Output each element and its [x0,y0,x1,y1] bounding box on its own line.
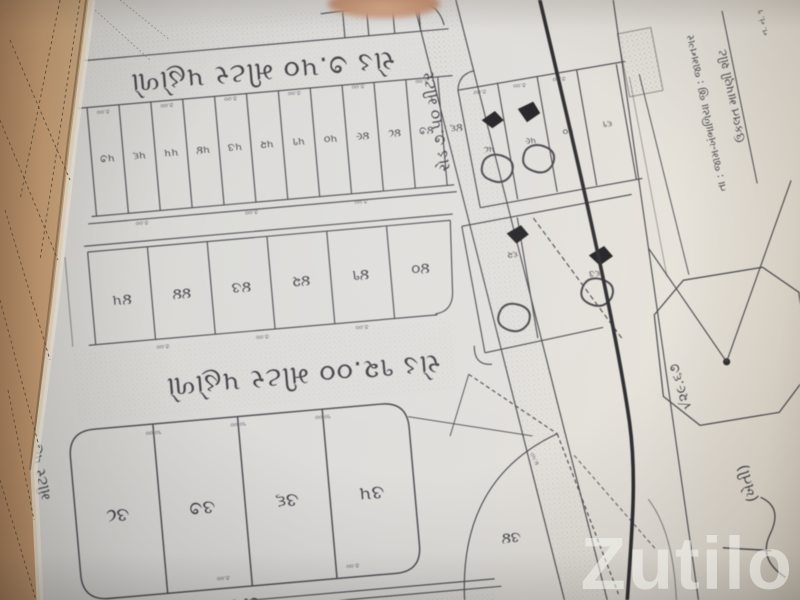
map-photo: રોડ ૭.૫૦ મીટર પહોળો ૫૭ ૫૬ ૫૫ ૫૪ ૫૩ ૫૨ ૫૧… [0,0,800,600]
folded-sheet-shadow [0,0,800,600]
corner-hatch-lines [95,0,170,60]
watermark: Zutilo [581,521,794,600]
